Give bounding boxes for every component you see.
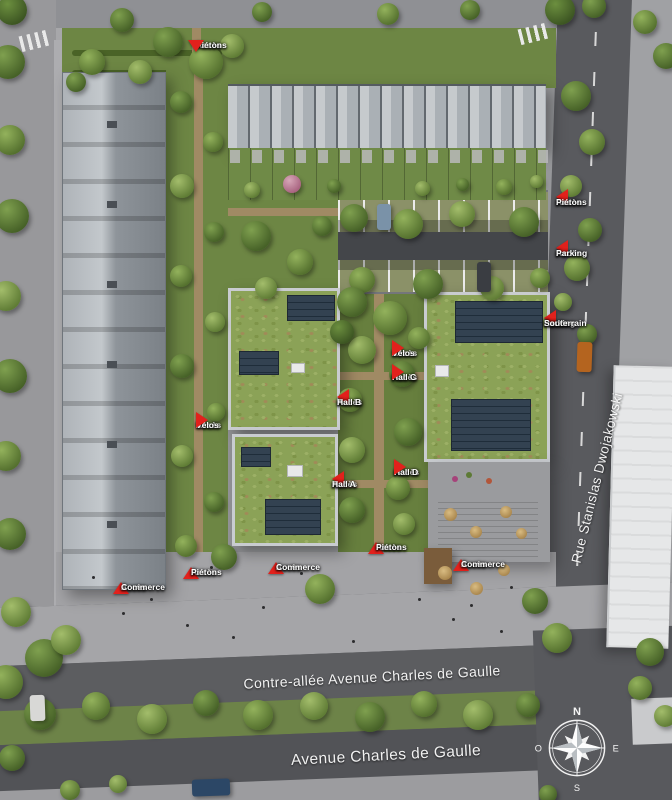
pedestrian bbox=[352, 640, 355, 643]
tree bbox=[128, 60, 152, 84]
tree bbox=[355, 702, 385, 732]
tree bbox=[415, 181, 430, 196]
roof-access-box bbox=[291, 363, 305, 373]
tree bbox=[509, 207, 539, 237]
cafe-umbrella bbox=[470, 582, 483, 595]
pedestrian bbox=[500, 630, 503, 633]
townhouse-row-roofs bbox=[228, 84, 546, 148]
tree bbox=[51, 625, 81, 655]
pedestrian bbox=[452, 618, 455, 621]
tree bbox=[628, 676, 652, 700]
tree bbox=[394, 418, 422, 446]
building-cd-terrace bbox=[428, 462, 550, 562]
tree bbox=[578, 218, 602, 242]
roof-vent bbox=[107, 121, 117, 128]
tree bbox=[653, 43, 672, 69]
tree bbox=[193, 690, 219, 716]
tree bbox=[243, 700, 273, 730]
tree bbox=[393, 209, 423, 239]
roof-vent bbox=[107, 521, 117, 528]
arrow-down-icon bbox=[188, 40, 204, 52]
pedestrian bbox=[122, 612, 125, 615]
solar-panels bbox=[451, 399, 531, 451]
tree bbox=[205, 312, 225, 332]
tree bbox=[312, 216, 332, 236]
tree bbox=[137, 704, 167, 734]
roof-access-box bbox=[435, 365, 449, 377]
cafe-umbrella bbox=[438, 566, 452, 580]
tree bbox=[561, 81, 591, 111]
tree bbox=[463, 700, 493, 730]
arrow-right-icon bbox=[392, 364, 404, 380]
roof-vent bbox=[107, 201, 117, 208]
solar-panels bbox=[241, 447, 271, 467]
pedestrian bbox=[92, 576, 95, 579]
tree bbox=[110, 8, 134, 32]
tree bbox=[522, 588, 548, 614]
planter bbox=[486, 478, 492, 484]
pedestrian bbox=[418, 598, 421, 601]
tree bbox=[66, 72, 86, 92]
tree bbox=[79, 49, 105, 75]
arrow-right-icon bbox=[392, 340, 404, 356]
solar-panels bbox=[239, 351, 279, 375]
van bbox=[477, 262, 491, 292]
tree bbox=[530, 175, 543, 188]
footpath bbox=[228, 208, 338, 216]
tree bbox=[636, 638, 664, 666]
garden-patios bbox=[230, 150, 548, 163]
umbrella bbox=[516, 528, 527, 539]
tree bbox=[337, 287, 367, 317]
solar-panels bbox=[287, 295, 335, 321]
site-plan: AccèsPiétons AccèsPiétons AccèsParking A… bbox=[0, 0, 672, 800]
tree bbox=[340, 204, 368, 232]
pedestrian bbox=[186, 624, 189, 627]
roof-bays bbox=[63, 73, 165, 589]
tree bbox=[339, 437, 365, 463]
arrow-right-icon bbox=[196, 412, 208, 428]
tree bbox=[283, 175, 301, 193]
tree bbox=[564, 255, 590, 281]
tree bbox=[411, 691, 437, 717]
tree bbox=[456, 178, 469, 191]
umbrella bbox=[470, 526, 482, 538]
building-west-long bbox=[62, 72, 166, 590]
compass-east: E bbox=[613, 744, 619, 754]
roof-vent bbox=[107, 281, 117, 288]
pedestrian bbox=[510, 586, 513, 589]
tree bbox=[1, 597, 31, 627]
road-west bbox=[0, 0, 56, 672]
tree bbox=[170, 354, 194, 378]
pedestrian bbox=[232, 636, 235, 639]
tree bbox=[60, 780, 80, 800]
compass-rose: N E S O bbox=[531, 702, 623, 794]
tree bbox=[241, 221, 271, 251]
pedestrian bbox=[150, 598, 153, 601]
car-white bbox=[30, 695, 46, 722]
tree bbox=[579, 129, 605, 155]
roof-vent bbox=[107, 361, 117, 368]
tree bbox=[0, 745, 25, 771]
tree bbox=[287, 249, 313, 275]
tree bbox=[413, 269, 443, 299]
tree bbox=[244, 182, 260, 198]
compass-west: O bbox=[535, 744, 542, 754]
pedestrian bbox=[300, 572, 303, 575]
tree bbox=[373, 301, 407, 335]
building-b-green-roof bbox=[228, 288, 340, 430]
pedestrian bbox=[470, 604, 473, 607]
umbrella bbox=[444, 508, 457, 521]
tree bbox=[339, 497, 365, 523]
tree bbox=[654, 705, 672, 727]
tree bbox=[305, 574, 335, 604]
compass-south: S bbox=[574, 783, 580, 793]
car-parked bbox=[192, 778, 231, 796]
tree bbox=[204, 222, 224, 242]
solar-panels bbox=[455, 301, 543, 343]
pedestrian bbox=[262, 606, 265, 609]
tree bbox=[203, 132, 223, 152]
tree bbox=[300, 692, 328, 720]
tree bbox=[255, 277, 277, 299]
tree bbox=[386, 476, 410, 500]
car bbox=[377, 204, 391, 230]
tree bbox=[204, 492, 224, 512]
tree bbox=[170, 174, 194, 198]
tree bbox=[393, 513, 415, 535]
tree bbox=[408, 327, 430, 349]
tree bbox=[170, 265, 192, 287]
roof-vent bbox=[107, 441, 117, 448]
tree bbox=[252, 2, 272, 22]
compass-north: N bbox=[573, 706, 581, 718]
building-a-green-roof bbox=[232, 434, 338, 546]
solar-panels bbox=[265, 499, 321, 535]
tree bbox=[153, 27, 183, 57]
tree bbox=[530, 268, 550, 288]
arrow-right-icon bbox=[394, 459, 406, 475]
planter bbox=[466, 472, 472, 478]
building-cd-green-roof bbox=[424, 292, 550, 462]
tree bbox=[633, 10, 657, 34]
planter bbox=[452, 476, 458, 482]
tree bbox=[330, 320, 354, 344]
tree bbox=[542, 623, 572, 653]
tree bbox=[207, 403, 225, 421]
tree bbox=[170, 91, 192, 113]
footpath bbox=[194, 60, 203, 592]
tree bbox=[449, 201, 475, 227]
tree bbox=[554, 293, 572, 311]
tree bbox=[171, 445, 193, 467]
tree bbox=[496, 179, 512, 195]
tree bbox=[460, 0, 480, 20]
tree bbox=[82, 692, 110, 720]
tree bbox=[348, 336, 376, 364]
tree bbox=[327, 179, 341, 193]
roof-access-box bbox=[287, 465, 303, 477]
tree bbox=[109, 775, 127, 793]
car-orange bbox=[576, 342, 592, 373]
tree bbox=[377, 3, 399, 25]
tree bbox=[175, 535, 197, 557]
umbrella bbox=[500, 506, 512, 518]
